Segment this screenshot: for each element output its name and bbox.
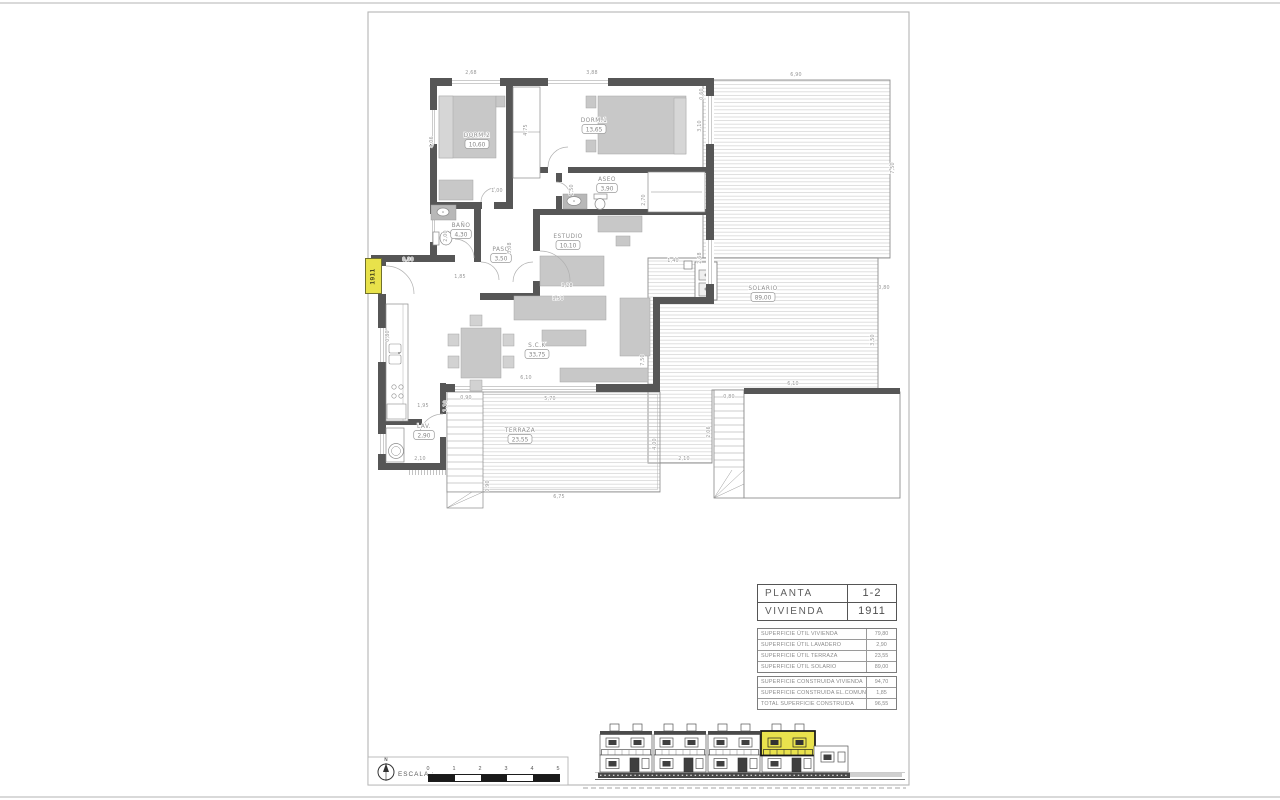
unit-number-tag: 1911	[365, 258, 382, 294]
dimension-label: 2,68	[697, 252, 703, 263]
room-area-value: 10,60	[469, 142, 486, 148]
dimension-label: 2,10	[678, 456, 689, 462]
lower-roof-void	[744, 392, 900, 498]
room-label: SOLARIO	[748, 286, 777, 292]
title-table-label: VIVIENDA	[758, 603, 847, 620]
dimension-label: 3,10	[697, 120, 703, 131]
scale-segment	[455, 775, 481, 781]
surface-table-row: SUPERFICIE ÚTIL LAVADERO2,90	[758, 639, 896, 650]
dimension-label: 4,00	[652, 438, 658, 449]
scale-segment	[481, 775, 507, 781]
dimension-label: 1,95	[417, 403, 428, 409]
scale-strip	[428, 774, 560, 782]
title-table: PLANTA1-2VIVIENDA1911	[757, 584, 897, 621]
surface-util-table: SUPERFICIE ÚTIL VIVIENDA79,80SUPERFICIE …	[757, 628, 897, 673]
scale-bar: 012345	[428, 766, 558, 784]
room-area-value: 3,90	[601, 186, 614, 192]
dimension-label: 0,90	[402, 257, 413, 263]
surface-table-value: 79,80	[866, 629, 896, 639]
roof-stairs	[714, 390, 744, 498]
dimension-label: 3,28	[561, 283, 572, 289]
dimension-label: 1,50	[569, 184, 575, 195]
threshold-hatch	[407, 470, 446, 475]
dimension-label: 4,75	[523, 124, 529, 135]
dimension-label: 0,90	[460, 395, 471, 401]
plan-sheet-page: N DORM.210,60DORM.113,65ASEO3,90BAÑO4,30…	[0, 0, 1280, 800]
terraza-stairs	[447, 392, 483, 508]
surface-table-value: 1,85	[866, 688, 896, 698]
roof-parapet-wall	[744, 388, 900, 394]
roof-drain	[684, 261, 692, 269]
room-area-value: 2,90	[418, 433, 431, 439]
room-label: DORM.2	[464, 133, 491, 139]
surface-table-row: SUPERFICIE ÚTIL SOLARIO89,00	[758, 661, 896, 672]
dimension-label: 6,90	[790, 72, 801, 78]
north-label: N	[384, 757, 387, 763]
surface-table-label: SUPERFICIE ÚTIL LAVADERO	[758, 640, 866, 650]
dimension-label: 0,80	[878, 285, 889, 291]
dimension-label: 7,50	[640, 354, 646, 365]
room-label: ESTUDIO	[553, 234, 582, 240]
dimension-label: 0,90	[485, 480, 491, 491]
highlighted-unit	[761, 731, 815, 756]
room-area-value: 23,55	[512, 437, 529, 443]
dimension-label: 6,75	[553, 494, 564, 500]
room-area-value: 13,65	[586, 127, 603, 133]
title-table-row: PLANTA1-2	[758, 585, 896, 602]
surface-table-row: SUPERFICIE ÚTIL VIVIENDA79,80	[758, 629, 896, 639]
room-area-value: 89,00	[755, 295, 772, 301]
room-label: TERRAZA	[504, 428, 535, 434]
room-area-value: 10,10	[560, 243, 577, 249]
dimension-label: 2,00	[443, 230, 449, 241]
dimension-label: 3,88	[586, 70, 597, 76]
surface-table-value: 89,00	[866, 662, 896, 672]
scale-tick-label: 5	[557, 766, 560, 772]
scale-segment	[533, 775, 559, 781]
scale-tick-label: 1	[453, 766, 456, 772]
dimension-label: 3,08	[507, 242, 513, 253]
dimension-label: 3,50	[870, 334, 876, 345]
title-table-label: PLANTA	[758, 585, 847, 602]
scale-segment	[507, 775, 533, 781]
architectural-drawing: N DORM.210,60DORM.113,65ASEO3,90BAÑO4,30…	[0, 0, 1280, 800]
surface-table-value: 96,55	[866, 699, 896, 709]
surface-table-row: SUPERFICIE CONSTRUIDA EL.COMUNES1,85	[758, 687, 896, 698]
dimension-label: 0,80	[723, 394, 734, 400]
room-label: BAÑO	[452, 222, 471, 229]
surface-table-row: SUPERFICIE ÚTIL TERRAZA23,55	[758, 650, 896, 661]
surface-table-value: 2,90	[866, 640, 896, 650]
room-area-value: 4,30	[455, 232, 468, 238]
surface-table-label: SUPERFICIE ÚTIL SOLARIO	[758, 662, 866, 672]
dimension-label: 6,10	[787, 381, 798, 387]
surface-table-label: SUPERFICIE ÚTIL VIVIENDA	[758, 629, 866, 639]
surface-table-label: SUPERFICIE CONSTRUIDA EL.COMUNES	[758, 688, 866, 698]
room-label: ASEO	[598, 177, 616, 183]
room-label: DORM.1	[581, 118, 608, 124]
room-label: LAV.	[417, 424, 431, 430]
room-area-value: 3,50	[495, 256, 508, 262]
scale-tick-label: 2	[479, 766, 482, 772]
surface-table-value: 94,70	[866, 677, 896, 687]
dimension-label: 2,06	[706, 426, 712, 437]
dimension-label: 1,85	[454, 274, 465, 280]
unit-number-tag-text: 1911	[370, 268, 377, 284]
scale-tick-label: 4	[531, 766, 534, 772]
surface-table-label: SUPERFICIE ÚTIL TERRAZA	[758, 651, 866, 661]
surface-construida-table: SUPERFICIE CONSTRUIDA VIVIENDA94,70SUPER…	[757, 676, 897, 710]
dimension-label: 2,68	[465, 70, 476, 76]
dimension-label: 1,40	[667, 258, 678, 264]
dimension-label: 0,80	[385, 330, 391, 341]
dimension-label: 6,10	[520, 375, 531, 381]
dimension-label: 1,10	[443, 400, 449, 411]
title-table-value: 1911	[847, 603, 896, 620]
room-area-value: 33,75	[529, 352, 546, 358]
title-table-value: 1-2	[847, 585, 896, 602]
surface-table-label: TOTAL SUPERFICIE CONSTRUIDA	[758, 699, 866, 709]
dimension-label: 2,10	[414, 456, 425, 462]
surface-table-label: SUPERFICIE CONSTRUIDA VIVIENDA	[758, 677, 866, 687]
dimension-label: 7,50	[890, 162, 896, 173]
surface-table-value: 23,55	[866, 651, 896, 661]
scale-segment	[429, 775, 455, 781]
scale-ticks: 012345	[428, 766, 558, 774]
dimension-label: 1,00	[491, 188, 502, 194]
dimension-label: 5,70	[544, 396, 555, 402]
scale-tick-label: 0	[427, 766, 430, 772]
dimension-label: 0,60	[699, 88, 705, 99]
dimension-label: 2,70	[641, 194, 647, 205]
building-elevation	[583, 724, 906, 788]
title-table-row: VIVIENDA1911	[758, 602, 896, 620]
room-label: S.C.K	[528, 343, 546, 349]
scale-tick-label: 3	[505, 766, 508, 772]
dimension-label: 3,50	[552, 296, 563, 302]
dimension-label: 4,06	[429, 136, 435, 147]
surface-table-row: TOTAL SUPERFICIE CONSTRUIDA96,55	[758, 698, 896, 709]
surface-table-row: SUPERFICIE CONSTRUIDA VIVIENDA94,70	[758, 677, 896, 687]
